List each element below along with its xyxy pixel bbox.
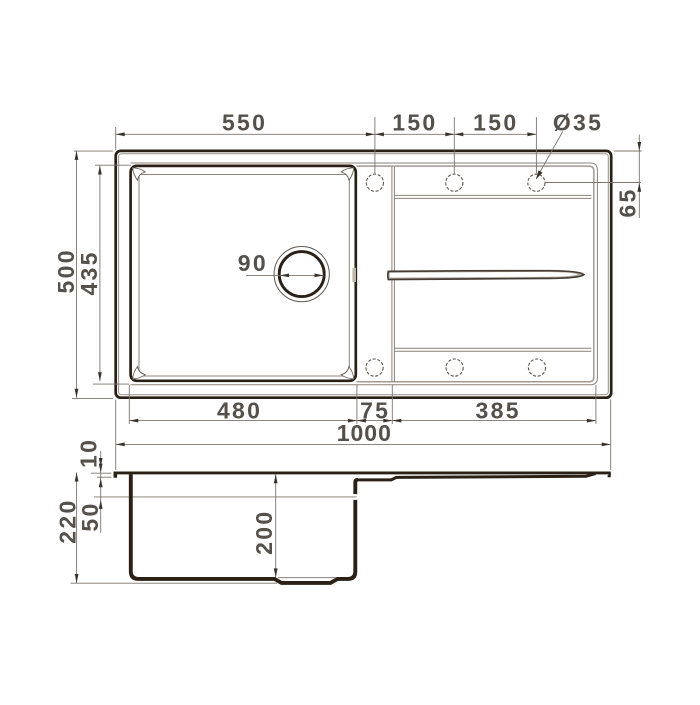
svg-text:90: 90 bbox=[238, 250, 268, 276]
svg-text:Ø35: Ø35 bbox=[553, 110, 603, 136]
svg-text:150: 150 bbox=[473, 110, 518, 136]
svg-text:150: 150 bbox=[392, 110, 437, 136]
svg-text:50: 50 bbox=[77, 501, 103, 531]
svg-text:220: 220 bbox=[55, 498, 81, 543]
svg-text:435: 435 bbox=[76, 250, 102, 295]
svg-text:385: 385 bbox=[476, 398, 521, 424]
svg-text:200: 200 bbox=[251, 510, 277, 555]
svg-text:1000: 1000 bbox=[337, 420, 392, 446]
svg-text:65: 65 bbox=[615, 187, 641, 217]
svg-text:10: 10 bbox=[76, 438, 102, 468]
svg-text:480: 480 bbox=[217, 398, 262, 424]
svg-text:550: 550 bbox=[222, 110, 267, 136]
